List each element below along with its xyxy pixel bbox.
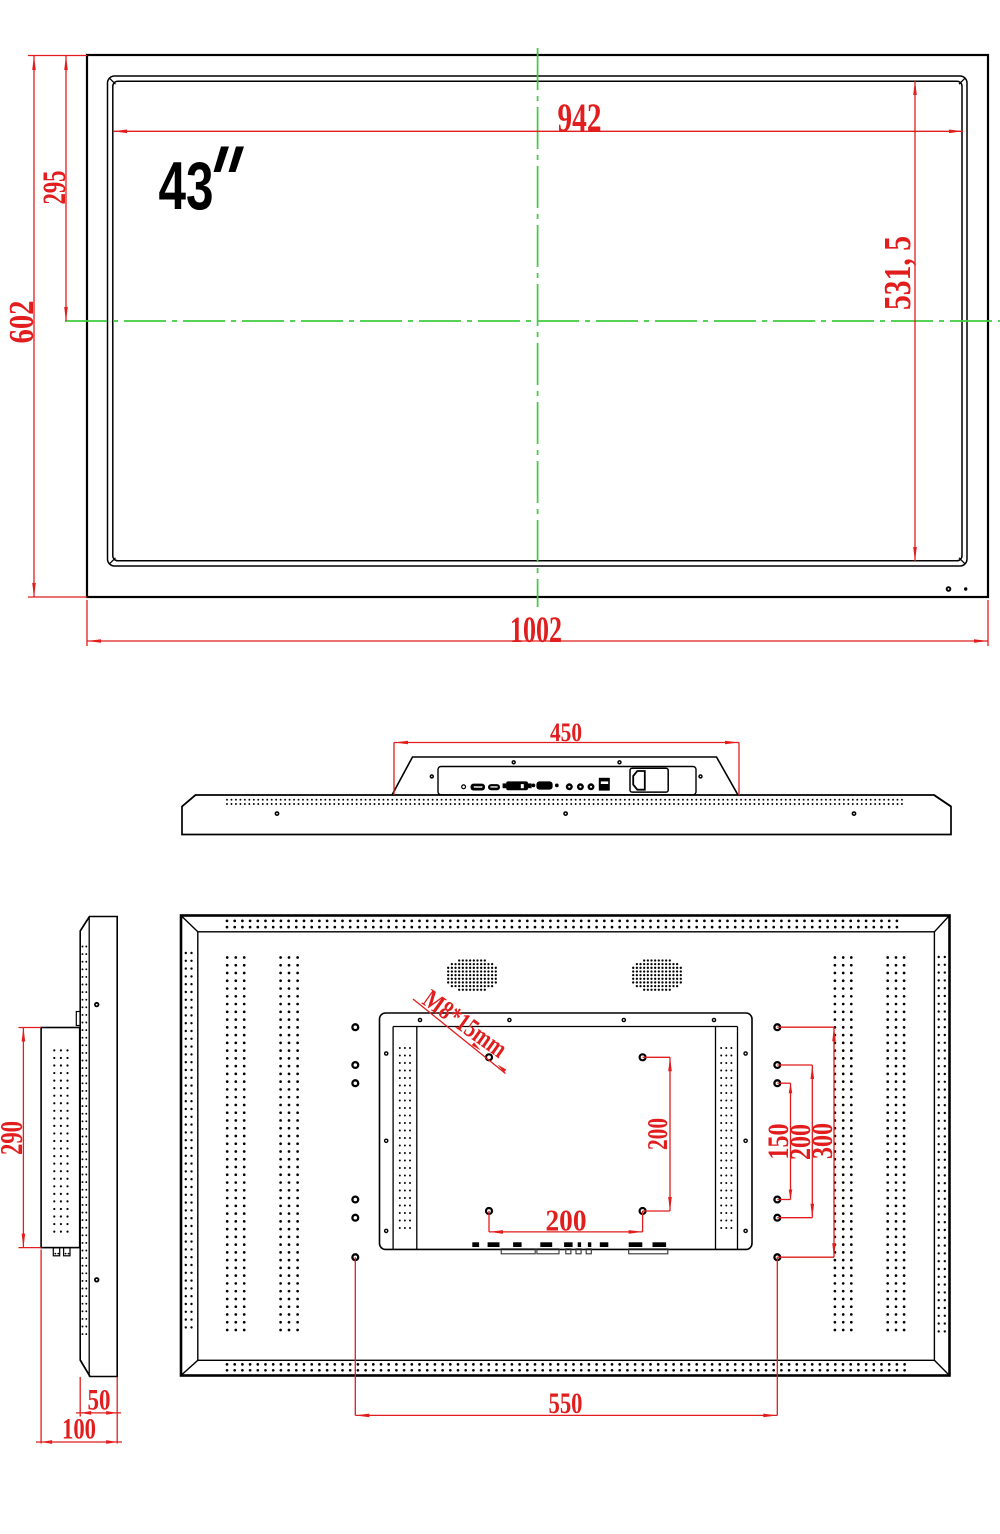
svg-text:150: 150 <box>762 1124 795 1160</box>
svg-text:43: 43 <box>159 148 214 224</box>
svg-text:100: 100 <box>62 1413 96 1446</box>
svg-text:295: 295 <box>37 171 73 205</box>
svg-text:531, 5: 531, 5 <box>877 236 919 310</box>
svg-text:550: 550 <box>549 1387 583 1420</box>
svg-text:450: 450 <box>550 718 582 747</box>
svg-text:602: 602 <box>2 301 41 344</box>
svg-text:942: 942 <box>558 95 602 140</box>
svg-text:200: 200 <box>546 1203 587 1238</box>
svg-text:1002: 1002 <box>510 610 562 651</box>
svg-text:290: 290 <box>0 1121 29 1155</box>
svg-text:200: 200 <box>643 1118 674 1150</box>
